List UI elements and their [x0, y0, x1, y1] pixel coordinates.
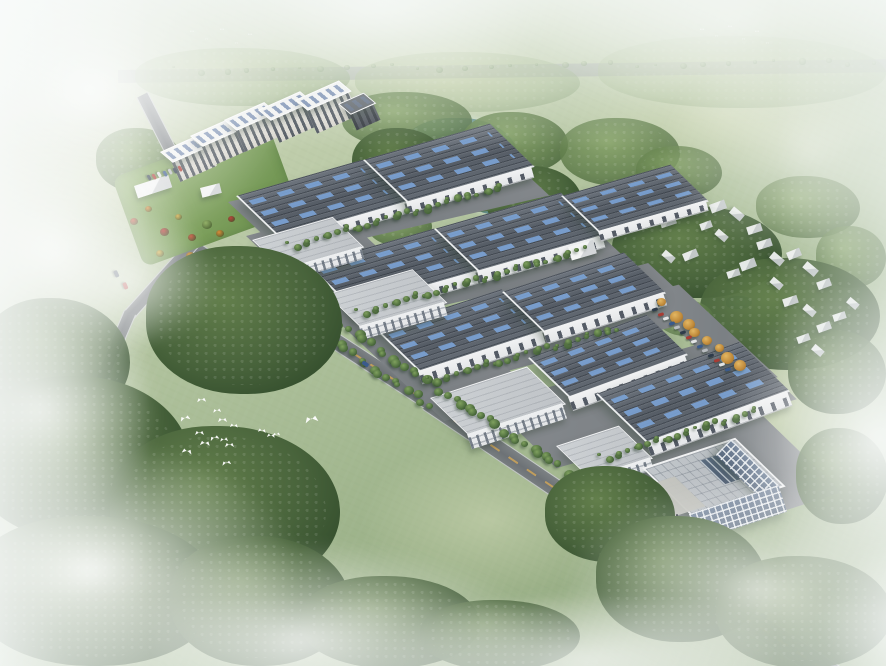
street-tree [379, 351, 386, 357]
street-tree [515, 353, 520, 358]
street-tree [454, 194, 462, 201]
aerial-rendering-industrial-park [0, 0, 886, 666]
street-tree [523, 261, 531, 268]
street-tree [555, 344, 559, 348]
street-tree [355, 225, 363, 232]
street-tree [484, 276, 488, 280]
street-tree [334, 229, 341, 235]
street-tree [285, 241, 289, 245]
street-tree [665, 436, 673, 443]
street-tree [393, 299, 401, 306]
street-tree [616, 451, 622, 456]
street-tree [453, 282, 457, 286]
street-tree [357, 334, 367, 343]
street-tree [477, 412, 485, 419]
street-tree [464, 278, 471, 284]
street-tree [364, 223, 371, 229]
street-tree [395, 211, 402, 217]
haze-overlay-right [776, 0, 886, 666]
street-tree [404, 208, 410, 213]
street-tree [504, 358, 511, 364]
street-tree [606, 456, 614, 463]
street-tree [464, 367, 472, 374]
street-tree [554, 255, 562, 262]
street-tree [454, 371, 459, 376]
street-tree [474, 364, 481, 370]
street-tree [533, 449, 543, 458]
street-tree [594, 329, 602, 336]
street-tree [345, 326, 352, 332]
street-tree [644, 441, 651, 447]
street-tree [414, 390, 423, 398]
street-tree [575, 337, 581, 342]
street-tree [485, 188, 493, 195]
street-tree [403, 296, 410, 302]
autumn-tree [702, 336, 712, 345]
street-tree [583, 245, 587, 249]
haze-overlay-left [0, 0, 150, 666]
street-tree [425, 376, 429, 380]
street-tree [415, 209, 419, 213]
street-tree [412, 371, 419, 377]
street-tree [384, 215, 388, 219]
street-tree [314, 236, 319, 241]
street-tree [349, 348, 357, 355]
street-tree [363, 311, 371, 318]
street-tree [524, 350, 528, 354]
street-tree [495, 360, 503, 367]
street-tree [391, 359, 401, 368]
street-tree [444, 392, 452, 399]
street-tree [294, 244, 302, 251]
street-tree [521, 441, 528, 447]
street-tree [324, 232, 332, 239]
street-tree [354, 308, 358, 312]
street-tree [511, 437, 519, 444]
street-tree [468, 408, 477, 416]
street-tree [545, 456, 553, 463]
street-tree [433, 290, 440, 296]
street-tree [367, 338, 376, 346]
street-tree [400, 363, 409, 371]
street-tree [375, 218, 380, 223]
street-tree [499, 429, 509, 438]
street-tree [373, 370, 382, 378]
street-tree [435, 202, 441, 207]
street-tree [554, 460, 561, 466]
autumn-tree [657, 298, 666, 306]
street-tree [434, 379, 442, 386]
street-tree [504, 269, 510, 274]
street-tree [444, 285, 449, 290]
haze-overlay-bottom [0, 596, 886, 666]
street-tree [625, 448, 630, 453]
street-tree [674, 433, 681, 439]
street-tree [574, 248, 579, 253]
street-tree [424, 292, 432, 299]
street-tree [404, 386, 414, 395]
street-tree [383, 303, 388, 308]
flower-shrub [216, 230, 224, 237]
street-tree [684, 428, 689, 433]
street-tree [535, 346, 542, 352]
street-tree [597, 453, 601, 457]
street-tree [544, 343, 550, 348]
street-tree [434, 388, 443, 396]
street-tree [473, 275, 479, 280]
